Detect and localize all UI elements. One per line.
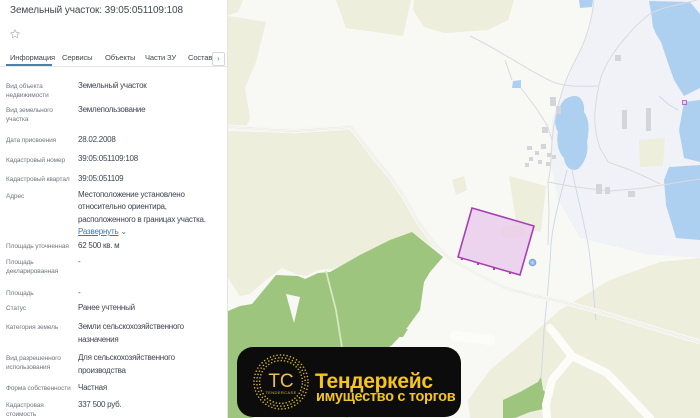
svg-text:ТС: ТС <box>268 371 293 392</box>
svg-text:TENDERCASE: TENDERCASE <box>265 390 296 395</box>
